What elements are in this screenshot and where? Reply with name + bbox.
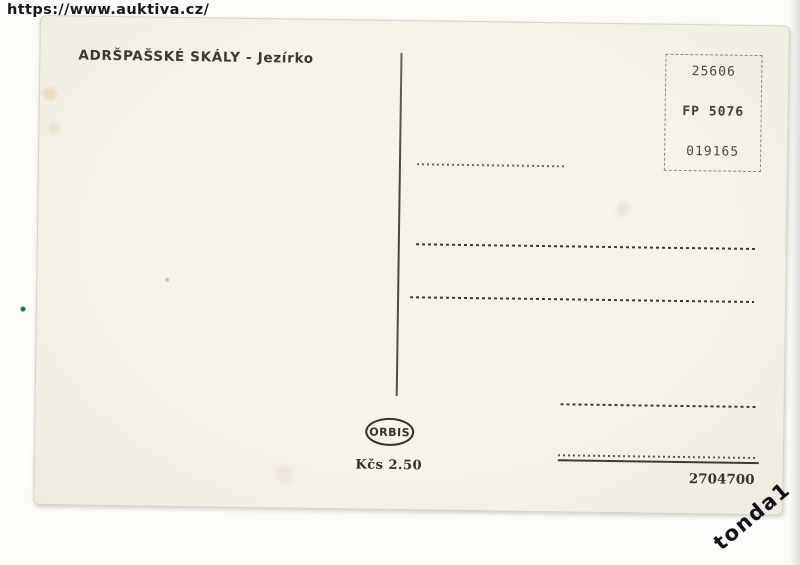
stamp-box-serial: 019165 [665, 144, 760, 160]
stamp-box-catalog-number: 25606 [666, 64, 761, 80]
print-number: 2704700 [682, 471, 754, 488]
address-line-1 [417, 163, 564, 167]
publisher-logo-label: ORBIS [369, 425, 410, 439]
address-line-3 [410, 296, 754, 303]
address-line-5-dotted [558, 454, 757, 459]
publisher-logo-oval: ORBIS [365, 418, 414, 447]
stamp-box-code: FP 5076 [666, 104, 761, 120]
postcard-back: ADRŠPAŠSKÉ SKÁLY - Jezírko 25606 FP 5076… [33, 15, 790, 515]
address-line-2 [416, 243, 758, 250]
price-label: Kčs 2.50 [351, 457, 427, 473]
message-address-divider-line [396, 53, 403, 396]
address-line-5-solid [558, 459, 759, 464]
stamp-placement-box: 25606 FP 5076 019165 [664, 54, 763, 172]
address-line-4 [561, 403, 757, 408]
postcard-title: ADRŠPAŠSKÉ SKÁLY - Jezírko [78, 48, 314, 67]
scan-artifact-speck [20, 306, 26, 312]
